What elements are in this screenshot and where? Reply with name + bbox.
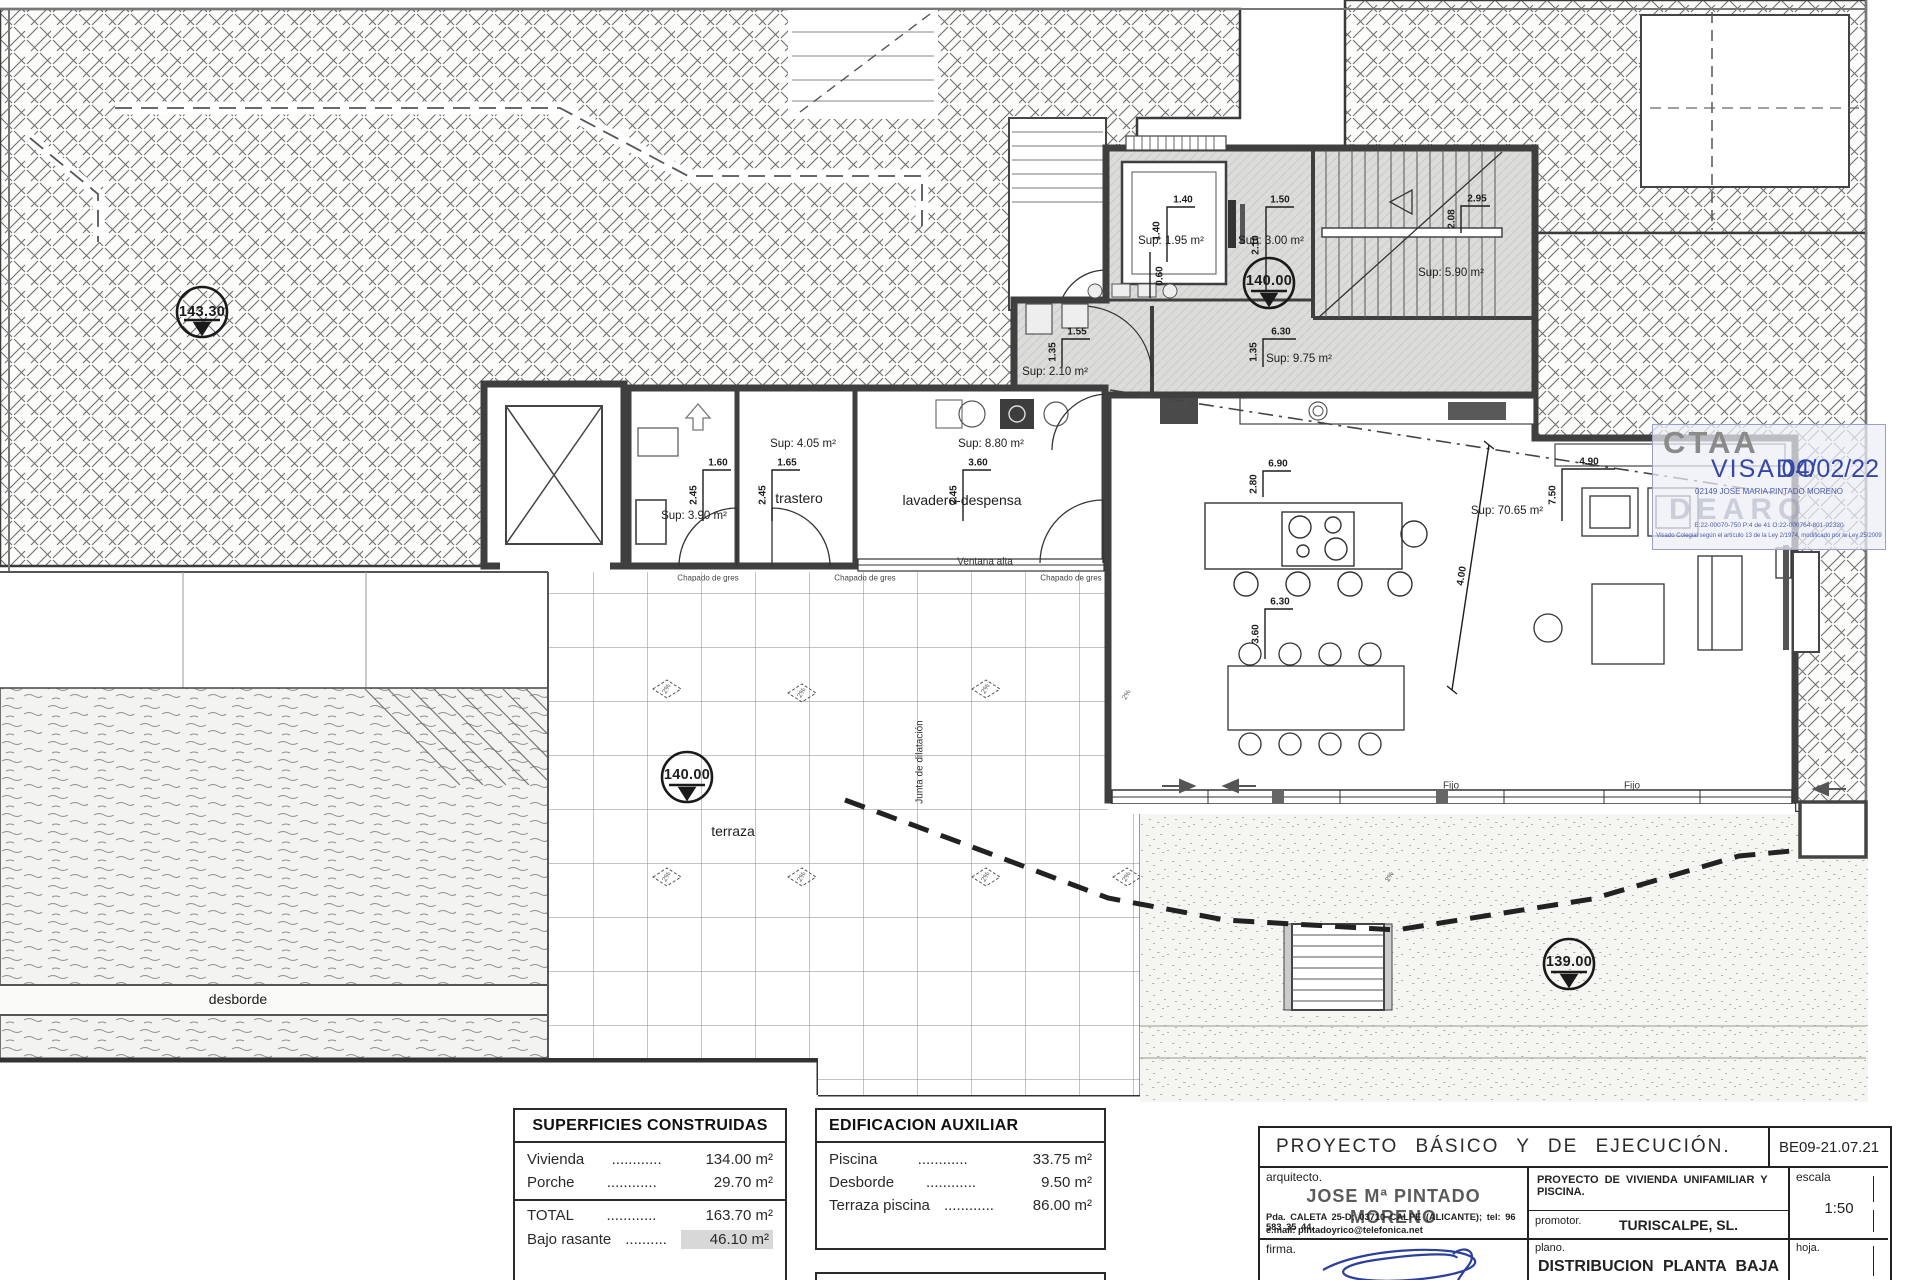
- table-row: Porche ............ 29.70 m²: [515, 1171, 785, 1194]
- exterior-stairs: [1284, 924, 1392, 1010]
- escala-label: escala: [1796, 1170, 1831, 1184]
- stamp-date: 04/02/22: [1782, 455, 1879, 484]
- firma-label: firma.: [1266, 1242, 1296, 1256]
- architect-cell: arquitecto. JOSE Mª PINTADO MORENO Pda. …: [1260, 1168, 1529, 1240]
- sheet-cell: hoja.: [1790, 1240, 1888, 1280]
- architect-signature: [1305, 1244, 1495, 1280]
- table-row-total: TOTAL ............ 163.70 m²: [515, 1199, 785, 1227]
- next-table-edge: [815, 1272, 1106, 1280]
- table-row: Piscina ............ 33.75 m²: [817, 1143, 1104, 1171]
- auxiliar-table: EDIFICACION AUXILIAR Piscina ...........…: [815, 1108, 1106, 1250]
- stamp-architect-line: 02149 JOSE MARIA PINTADO MORENO: [1695, 487, 1843, 496]
- architect-email: e.mail: pintadoyrico@telefonica.net: [1266, 1225, 1423, 1235]
- table-row: Desborde ............ 9.50 m²: [817, 1171, 1104, 1194]
- floor-plan-sheet: 143.30140.00140.00139.00Sup: 1.95 m²1.40…: [0, 0, 1920, 1280]
- plano-cell: plano. DISTRIBUCION PLANTA BAJA: [1529, 1240, 1790, 1280]
- title-block: PROYECTO BÁSICO Y DE EJECUCIÓN. BE09-21.…: [1258, 1126, 1892, 1280]
- tv: [1783, 545, 1789, 650]
- stamp-legal: Visado Colegial según el artículo 13 de …: [1656, 533, 1881, 539]
- arquitecto-label: arquitecto.: [1266, 1170, 1322, 1184]
- table-row: Vivienda ............ 134.00 m²: [515, 1143, 785, 1171]
- promotor-label: promotor.: [1535, 1215, 1581, 1227]
- project-description: PROYECTO DE VIVIENDA UNIFAMILIAR Y PISCI…: [1529, 1168, 1790, 1210]
- table-row: Terraza piscina ............ 86.00 m²: [817, 1194, 1104, 1217]
- drawing-ref: BE09-21.07.21: [1770, 1128, 1888, 1168]
- plano-label: plano.: [1535, 1242, 1565, 1254]
- stamp-codes: E:22-00070-750 P:4 de 41 O:22-000764-801…: [1694, 522, 1843, 529]
- signature-cell: firma.: [1260, 1240, 1529, 1280]
- auxiliar-table-title: EDIFICACION AUXILIAR: [817, 1110, 1104, 1143]
- superfic-table-title: SUPERFICIES CONSTRUIDAS: [515, 1110, 785, 1143]
- divider: [1873, 1176, 1874, 1202]
- divider: [1873, 1210, 1874, 1232]
- elevator: [1122, 162, 1226, 284]
- visado-stamp: DEARQ CTAA VISADO 04/02/22 02149 JOSE MA…: [1652, 424, 1886, 550]
- promotor-name: TURISCALPE, SL.: [1619, 1217, 1738, 1233]
- plano-title: DISTRIBUCION PLANTA BAJA: [1529, 1258, 1788, 1276]
- promoter-cell: promotor. TURISCALPE, SL.: [1529, 1210, 1790, 1240]
- project-title: PROYECTO BÁSICO Y DE EJECUCIÓN.: [1260, 1128, 1770, 1168]
- table-row-bajo-rasante: Bajo rasante .......... 46.10 m²: [515, 1227, 785, 1252]
- superfic-table: SUPERFICIES CONSTRUIDAS Vivienda .......…: [513, 1108, 787, 1280]
- sand-area: [1140, 812, 1868, 1102]
- overflow-channel: [0, 985, 548, 1015]
- scale-cell: escala 1:50: [1790, 1168, 1888, 1240]
- divider: [1873, 1246, 1874, 1276]
- hoja-label: hoja.: [1796, 1242, 1820, 1254]
- floor-plan-drawing: [0, 0, 1920, 1280]
